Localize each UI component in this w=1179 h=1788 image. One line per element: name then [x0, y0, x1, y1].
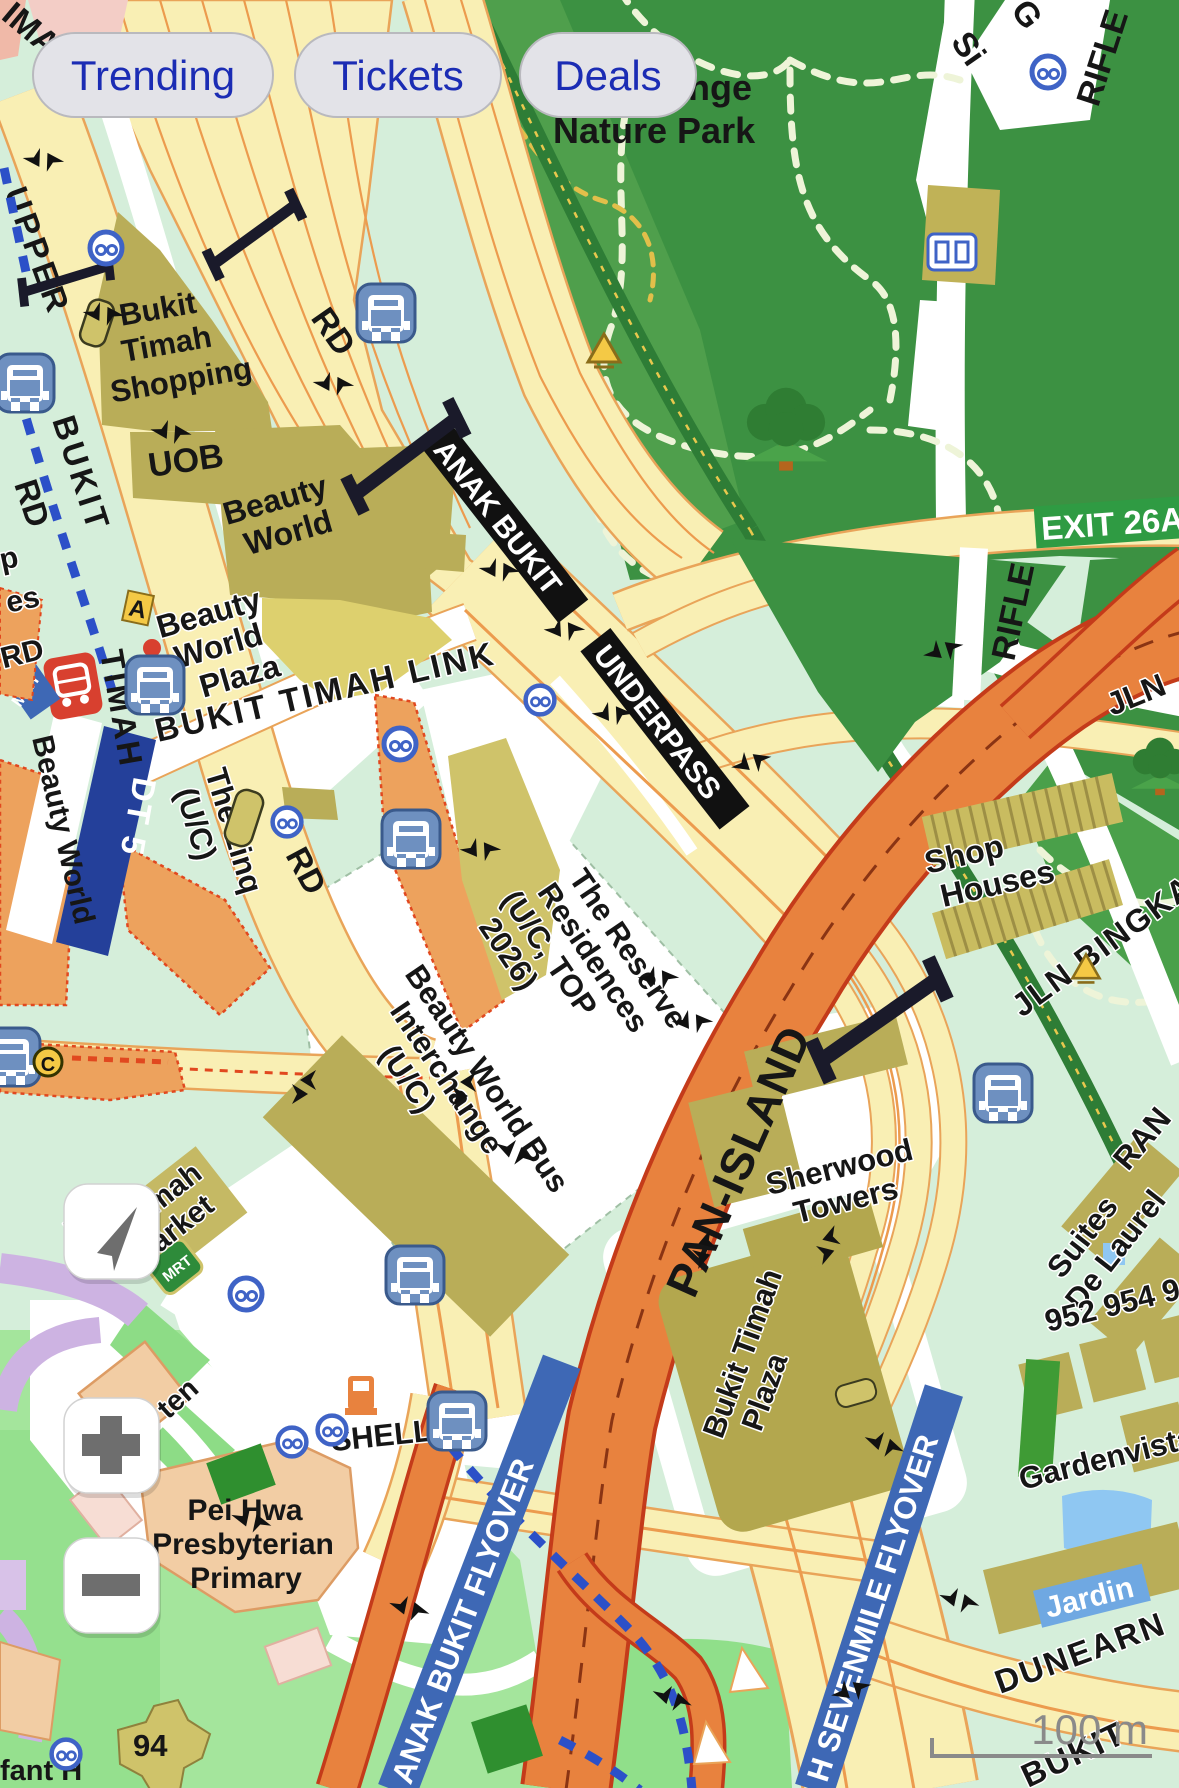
- svg-text:94: 94: [133, 1728, 168, 1763]
- svg-text:100 m: 100 m: [1031, 1706, 1148, 1753]
- svg-text:es: es: [3, 580, 43, 619]
- svg-text:nge: nge: [688, 67, 752, 108]
- svg-text:Deals: Deals: [554, 52, 661, 99]
- svg-text:Presbyterian: Presbyterian: [152, 1528, 334, 1561]
- svg-text:Trending: Trending: [71, 52, 235, 99]
- svg-text:Tickets: Tickets: [332, 52, 463, 99]
- svg-text:Primary: Primary: [190, 1562, 302, 1595]
- svg-text:C: C: [41, 1054, 55, 1076]
